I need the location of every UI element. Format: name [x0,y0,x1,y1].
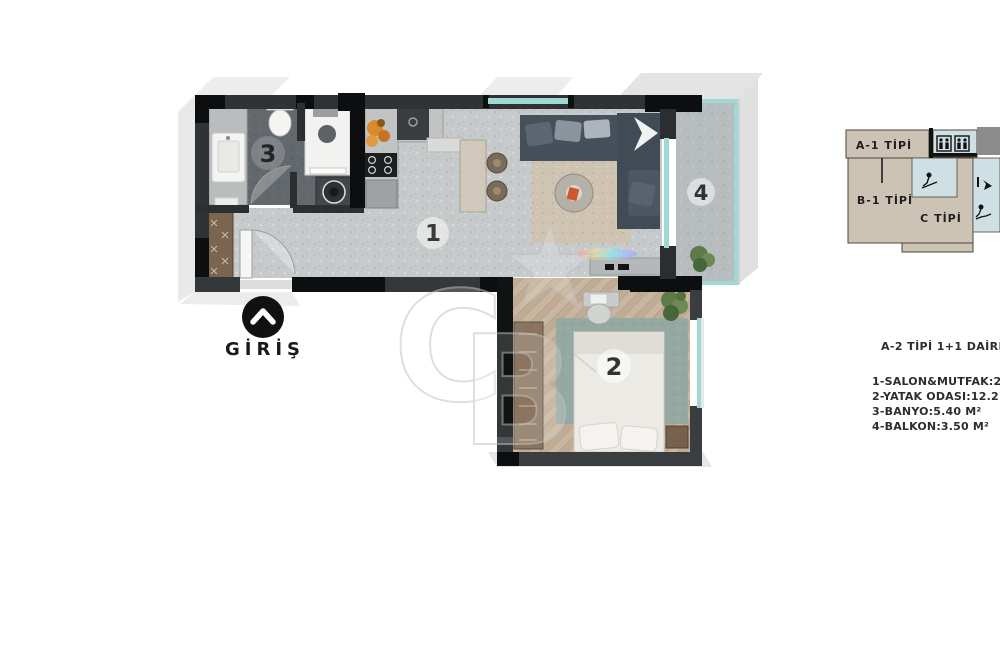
bath-mat [215,198,238,206]
unit-info-panel: A-2 TİPİ 1+1 DAİRE 1-SALON&MUTFAK:2 2-YA… [872,340,1000,434]
shower-drain [318,125,336,143]
entry-threshold [240,280,292,289]
floor-plan-page: { "entrance": { "label": "GİRİŞ" }, "roo… [0,0,1000,664]
sink-basin [218,141,239,172]
room-number-balcony: 4 [694,181,709,205]
keyplan-stair-core [912,158,957,197]
keyplan-corridor [973,158,1000,232]
fridge [366,180,397,208]
kitchen-window-glass [488,98,568,104]
desk-laptop [590,294,607,304]
room-area-line: 1-SALON&MUTFAK:2 [872,374,1000,389]
bar-stool-seat [493,187,501,195]
keyplan-label-b1: B-1 TİPİ [857,193,913,207]
apartment-floor-plan: 1 2 3 4 C B GİRİŞ [0,0,1000,664]
room-number-bedroom: 2 [606,353,623,381]
shower-fixture [313,109,338,117]
kitchen-island [460,140,486,212]
tv-device [605,264,614,270]
entry-door-leaf [240,230,252,278]
unit-title: A-2 TİPİ 1+1 DAİRE [872,340,1000,353]
keyplan-label-c: C TİPİ [920,211,962,225]
stove [364,153,397,177]
washer-drum-center [330,188,339,197]
room-area-line: 4-BALKON:3.50 M² [872,419,1000,434]
pillow [620,425,658,451]
key-plan: A-1 TİPİ B-1 TİPİ C TİPİ [846,127,1000,252]
entrance-label: GİRİŞ [225,338,305,360]
shower-glass-door [310,168,346,174]
pillow [579,422,619,451]
balcony-glass-wall [664,138,669,248]
tv-console [590,258,670,275]
entrance-arrow-circle [242,296,284,338]
tv-device [618,264,629,270]
room-number-bathroom: 3 [260,140,277,168]
counter-return [427,138,463,152]
cb-logo-watermark: C B [393,222,594,480]
kitchen-sink-unit [397,109,429,140]
keyplan-shaft-block [977,127,1000,155]
room-area-line: 2-YATAK ODASI:12.2 [872,389,1000,404]
bar-stool-seat [493,159,501,167]
desk-chair [587,304,611,324]
watermark-letter-b: B [460,303,576,480]
keyplan-tab [902,243,973,252]
faucet-icon [226,136,230,140]
room-number-living: 1 [425,221,441,247]
bedroom-window-glass [697,318,701,408]
nightstand [666,426,688,448]
room-area-line: 3-BANYO:5.40 M² [872,404,1000,419]
keyplan-label-a1: A-1 TİPİ [856,138,912,152]
toilet [269,110,291,136]
shoe-cabinet [206,212,233,278]
